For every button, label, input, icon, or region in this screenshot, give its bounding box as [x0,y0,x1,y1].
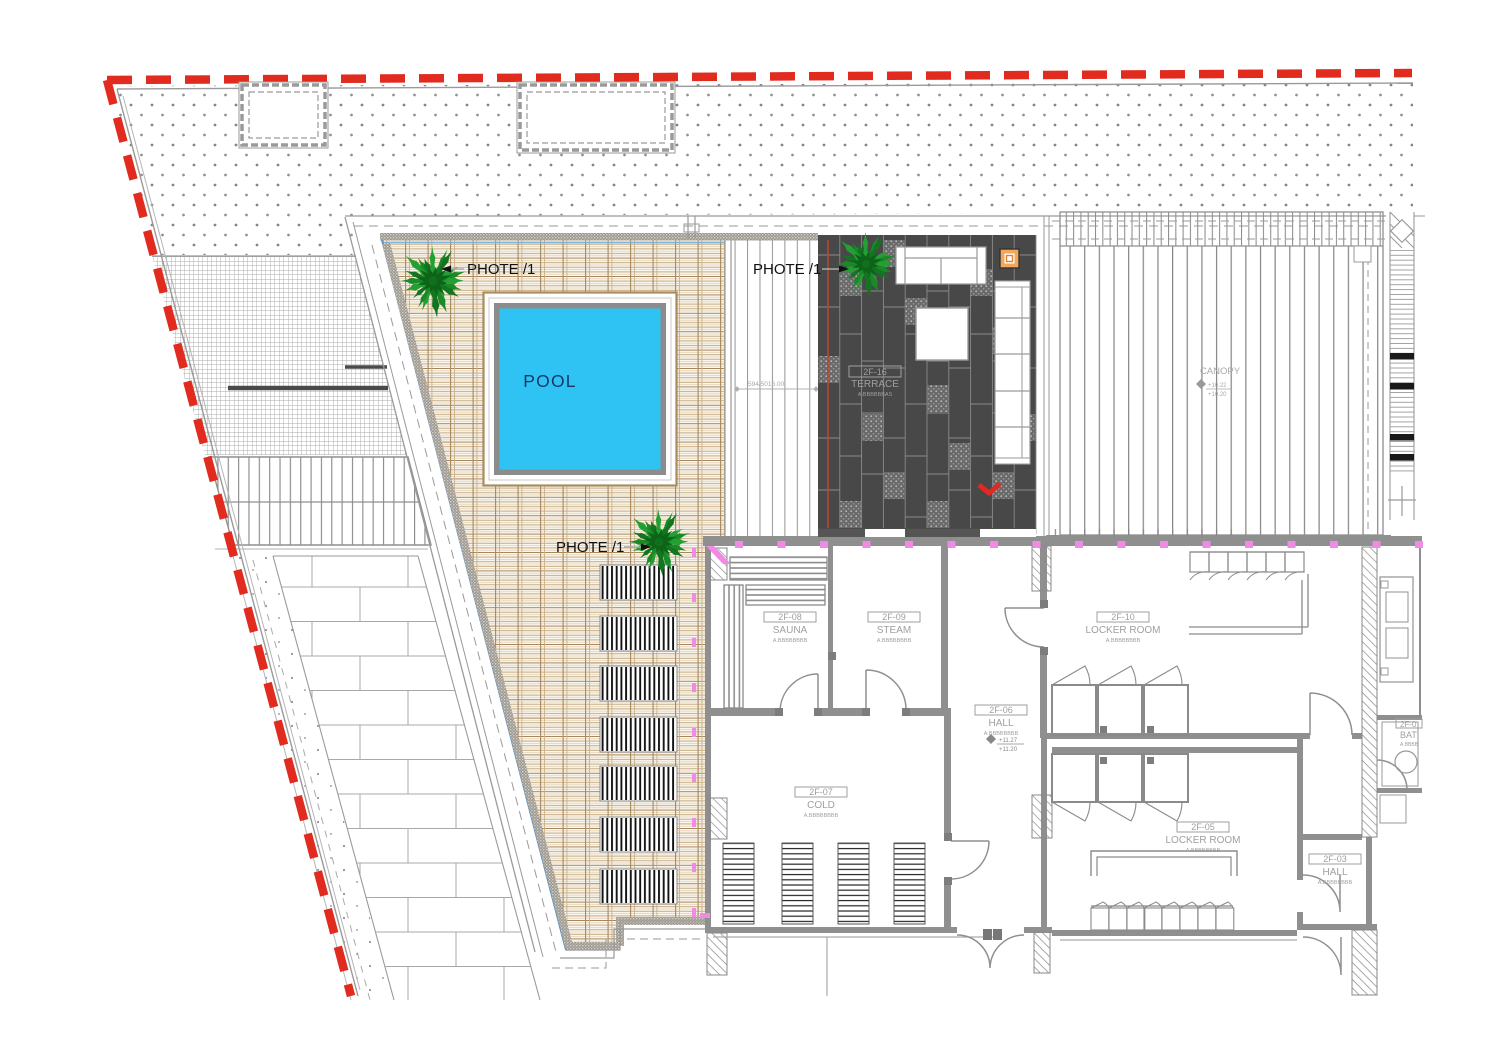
svg-text:PHOTE /1: PHOTE /1 [753,261,821,278]
svg-text:A.BBBBBBBB: A.BBBBBBBB [1186,848,1221,854]
svg-text:A.BBBB: A.BBBB [1400,742,1419,748]
svg-text:A.BBBBBBAS: A.BBBBBBAS [858,392,893,398]
svg-text:+10.20: +10.20 [1208,392,1227,398]
svg-text:COLD: COLD [807,800,835,811]
svg-text:2F-07: 2F-07 [809,787,833,797]
svg-text:594/5016.00: 594/5016.00 [748,381,785,388]
svg-text:2F-03: 2F-03 [1323,854,1347,864]
svg-text:SAUNA: SAUNA [773,625,808,636]
svg-text:CANOPY: CANOPY [1200,366,1241,377]
svg-text:+11.20: +11.20 [999,747,1018,753]
svg-text:STEAM: STEAM [877,625,911,636]
svg-text:2F-0: 2F-0 [1400,720,1417,729]
svg-text:+10.22: +10.22 [1208,383,1227,389]
svg-text:BAT: BAT [1400,730,1417,740]
svg-text:POOL: POOL [523,371,576,391]
svg-text:2F-05: 2F-05 [1191,822,1215,832]
svg-text:A.BBBBBBBB: A.BBBBBBBB [804,813,839,819]
svg-text:LOCKER ROOM: LOCKER ROOM [1165,835,1240,846]
svg-text:HALL: HALL [1322,867,1347,878]
svg-text:HALL: HALL [988,718,1013,729]
svg-text:2F-08: 2F-08 [778,612,802,622]
svg-text:2F-09: 2F-09 [882,612,906,622]
svg-text:TERRACE: TERRACE [851,379,899,390]
svg-text:2F-06: 2F-06 [989,705,1013,715]
svg-text:2F-16: 2F-16 [863,367,887,377]
svg-text:+11.27: +11.27 [999,738,1018,744]
svg-text:PHOTE /1: PHOTE /1 [556,539,624,556]
svg-text:A.BBBBBBBB: A.BBBBBBBB [1318,880,1353,886]
svg-text:A.BBBBBBBB: A.BBBBBBBB [1106,638,1141,644]
svg-text:A.BBBBBBBB: A.BBBBBBBB [877,638,912,644]
svg-text:LOCKER ROOM: LOCKER ROOM [1085,625,1160,636]
svg-text:PHOTE /1: PHOTE /1 [467,261,535,278]
svg-text:A.BBBBBBBB: A.BBBBBBBB [773,638,808,644]
svg-text:2F-10: 2F-10 [1111,612,1135,622]
